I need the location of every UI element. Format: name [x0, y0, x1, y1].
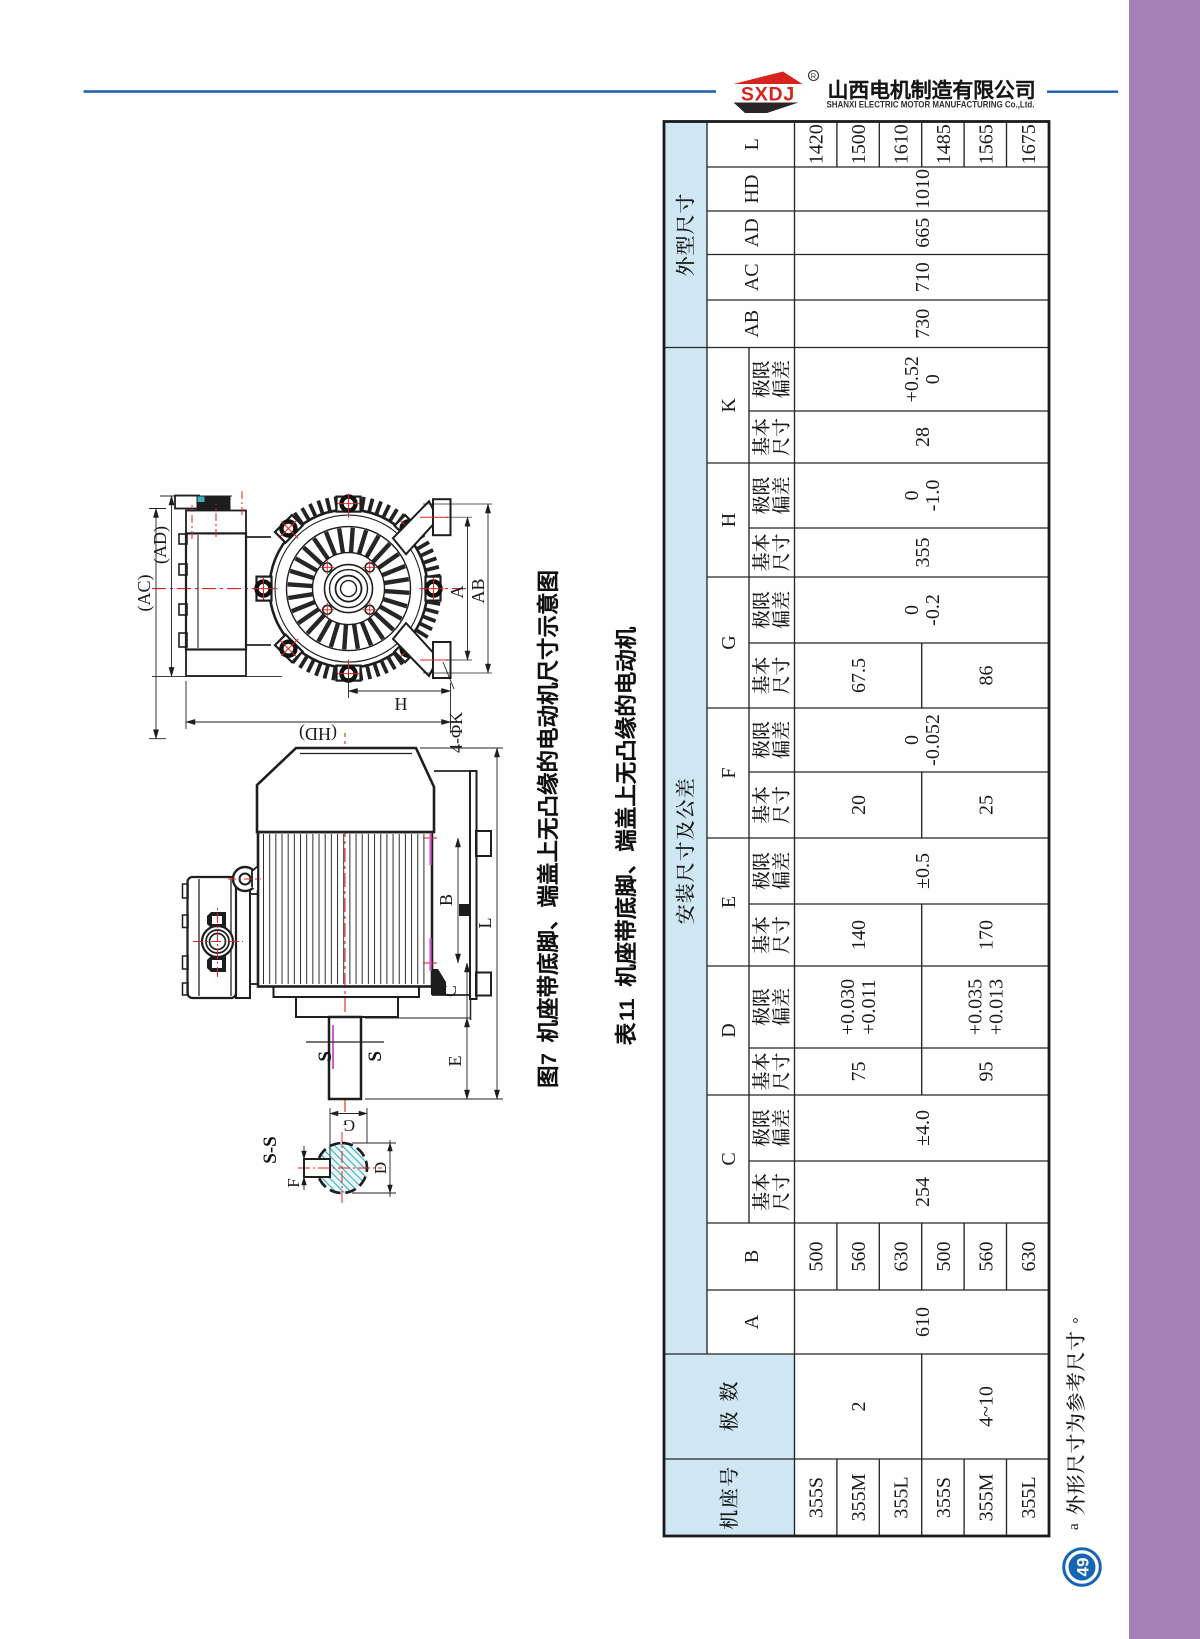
- svg-text:1010: 1010: [912, 169, 934, 209]
- svg-text:7: 7: [537, 1053, 561, 1065]
- svg-text:1420: 1420: [806, 124, 828, 164]
- svg-text:630: 630: [891, 1242, 913, 1272]
- svg-text:355L: 355L: [1018, 1476, 1040, 1518]
- svg-text:560: 560: [848, 1242, 870, 1272]
- svg-text:(HD): (HD): [299, 723, 337, 744]
- svg-text:AB: AB: [741, 310, 763, 338]
- svg-text:0: 0: [901, 491, 923, 501]
- svg-text:355S: 355S: [806, 1477, 828, 1518]
- svg-text:(AC): (AC): [134, 575, 155, 612]
- svg-text:C: C: [440, 985, 460, 997]
- svg-text:0: 0: [901, 735, 923, 745]
- svg-text:D: D: [371, 1162, 390, 1174]
- svg-text:665: 665: [912, 218, 934, 248]
- svg-text:355L: 355L: [891, 1476, 913, 1518]
- svg-text:L: L: [741, 138, 763, 150]
- svg-text:C: C: [718, 1152, 740, 1165]
- svg-text:500: 500: [806, 1242, 828, 1272]
- svg-text:355: 355: [912, 538, 934, 568]
- svg-text:H: H: [395, 694, 408, 714]
- svg-text:140: 140: [848, 920, 870, 950]
- svg-text:+0.030: +0.030: [837, 979, 859, 1035]
- svg-text:+0.52: +0.52: [901, 356, 923, 402]
- svg-text:±0.5: ±0.5: [912, 853, 934, 889]
- svg-text:11: 11: [615, 998, 639, 1021]
- svg-text:F: F: [718, 767, 740, 778]
- svg-text:1610: 1610: [891, 124, 913, 164]
- svg-text:-0.2: -0.2: [922, 594, 944, 626]
- svg-text:+0.013: +0.013: [985, 979, 1007, 1035]
- svg-text:a: a: [1066, 1523, 1082, 1530]
- svg-text:86: 86: [975, 666, 997, 686]
- svg-text:355M: 355M: [975, 1473, 997, 1521]
- svg-text:710: 710: [912, 262, 934, 292]
- svg-text:0: 0: [922, 374, 944, 384]
- svg-text:A: A: [447, 586, 467, 599]
- svg-text:355M: 355M: [848, 1473, 870, 1521]
- svg-text:S-S: S-S: [260, 1136, 281, 1163]
- svg-text:B: B: [741, 1250, 763, 1263]
- svg-text:560: 560: [975, 1242, 997, 1272]
- svg-text:-1.0: -1.0: [922, 480, 944, 512]
- svg-text:355S: 355S: [933, 1477, 955, 1518]
- svg-text:±4.0: ±4.0: [912, 1110, 934, 1146]
- svg-text:1675: 1675: [1018, 124, 1040, 164]
- svg-text:25: 25: [975, 795, 997, 815]
- svg-text:-0.052: -0.052: [922, 714, 944, 766]
- svg-text:H: H: [718, 513, 740, 527]
- svg-text:(AD): (AD): [150, 526, 171, 564]
- svg-text:4-ΦK: 4-ΦK: [446, 712, 466, 753]
- svg-text:S: S: [365, 1051, 386, 1062]
- svg-text:610: 610: [912, 1307, 934, 1337]
- svg-text:254: 254: [912, 1177, 934, 1207]
- svg-text:S: S: [315, 1051, 336, 1062]
- svg-text:630: 630: [1018, 1242, 1040, 1272]
- svg-text:E: E: [445, 1056, 465, 1067]
- svg-text:L: L: [475, 918, 495, 929]
- svg-text:HD: HD: [741, 175, 763, 204]
- svg-text:49: 49: [1074, 1558, 1093, 1577]
- svg-text:+0.011: +0.011: [858, 979, 880, 1035]
- svg-text:500: 500: [933, 1242, 955, 1272]
- svg-text:67.5: 67.5: [848, 658, 870, 693]
- svg-text:730: 730: [912, 309, 934, 339]
- svg-text:D: D: [718, 1023, 740, 1037]
- svg-text:95: 95: [975, 1062, 997, 1082]
- svg-text:AB: AB: [468, 578, 488, 603]
- svg-text:28: 28: [912, 427, 934, 447]
- svg-text:75: 75: [848, 1062, 870, 1082]
- svg-text:E: E: [718, 896, 740, 908]
- svg-text:20: 20: [848, 795, 870, 815]
- svg-text:F: F: [284, 1178, 303, 1187]
- svg-text:AD: AD: [741, 218, 763, 247]
- svg-text:AC: AC: [741, 263, 763, 291]
- svg-text:B: B: [436, 894, 456, 906]
- svg-text:G: G: [343, 1116, 355, 1135]
- svg-text:170: 170: [975, 920, 997, 950]
- svg-text:4~10: 4~10: [975, 1386, 997, 1427]
- svg-text:K: K: [718, 397, 740, 412]
- svg-text:1565: 1565: [975, 124, 997, 164]
- svg-text:0: 0: [901, 605, 923, 615]
- svg-text:A: A: [741, 1314, 763, 1329]
- svg-text:+0.035: +0.035: [964, 979, 986, 1035]
- svg-text:1485: 1485: [933, 124, 955, 164]
- svg-text:G: G: [718, 635, 740, 649]
- svg-text:2: 2: [848, 1402, 870, 1412]
- svg-text:1500: 1500: [848, 124, 870, 164]
